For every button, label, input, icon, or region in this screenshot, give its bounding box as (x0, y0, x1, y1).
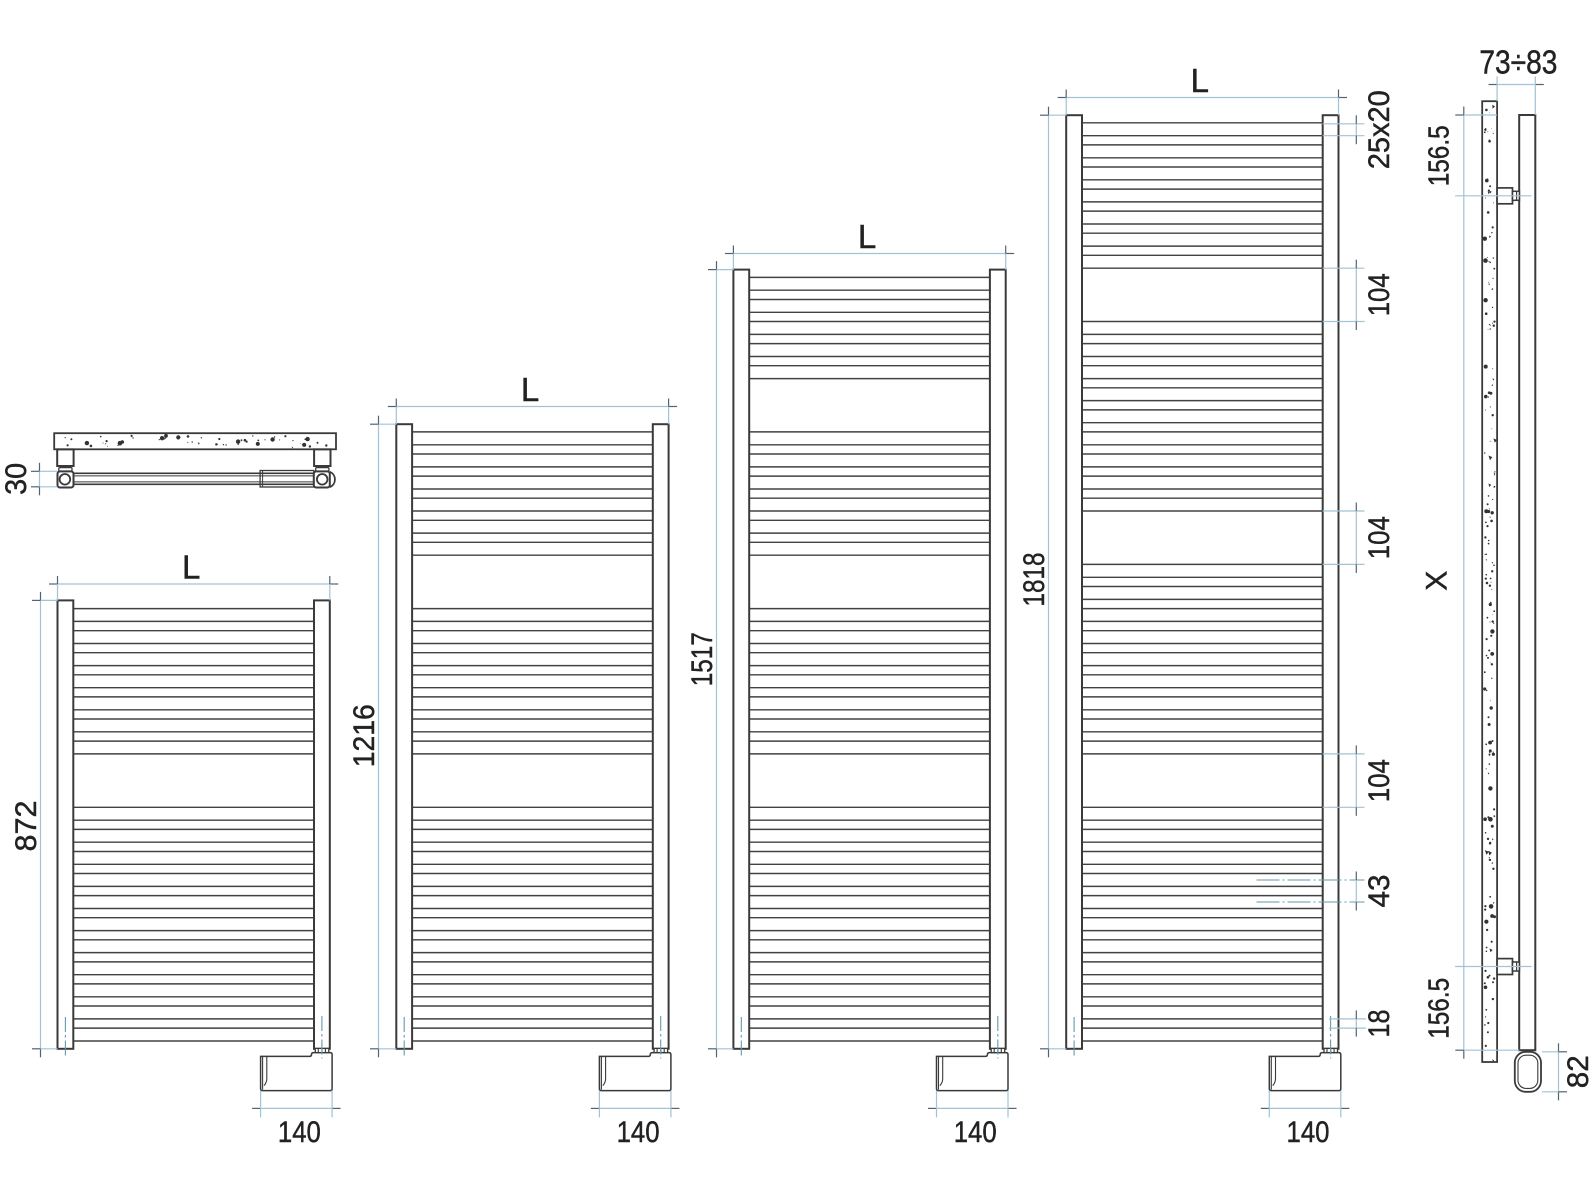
svg-text:156.5: 156.5 (1423, 125, 1455, 186)
svg-text:30: 30 (0, 463, 33, 495)
svg-text:L: L (182, 549, 200, 586)
svg-text:104: 104 (1363, 273, 1396, 316)
svg-text:X: X (1421, 571, 1454, 591)
svg-text:140: 140 (1287, 1116, 1330, 1149)
svg-text:140: 140 (954, 1116, 997, 1149)
svg-text:82: 82 (1562, 1055, 1595, 1088)
svg-text:1818: 1818 (1018, 553, 1051, 607)
svg-text:872: 872 (10, 801, 43, 852)
svg-text:156.5: 156.5 (1423, 978, 1455, 1039)
svg-text:18: 18 (1363, 1010, 1396, 1038)
svg-text:104: 104 (1363, 516, 1396, 559)
svg-text:104: 104 (1363, 759, 1396, 802)
svg-text:L: L (521, 371, 539, 408)
svg-text:1517: 1517 (686, 632, 719, 686)
svg-text:1216: 1216 (348, 704, 381, 767)
svg-text:140: 140 (617, 1116, 660, 1149)
svg-text:43: 43 (1363, 875, 1396, 908)
svg-text:140: 140 (278, 1116, 321, 1149)
svg-text:73÷83: 73÷83 (1479, 44, 1557, 81)
svg-text:L: L (858, 218, 876, 255)
svg-text:L: L (1191, 62, 1209, 99)
svg-text:25x20: 25x20 (1363, 90, 1396, 169)
